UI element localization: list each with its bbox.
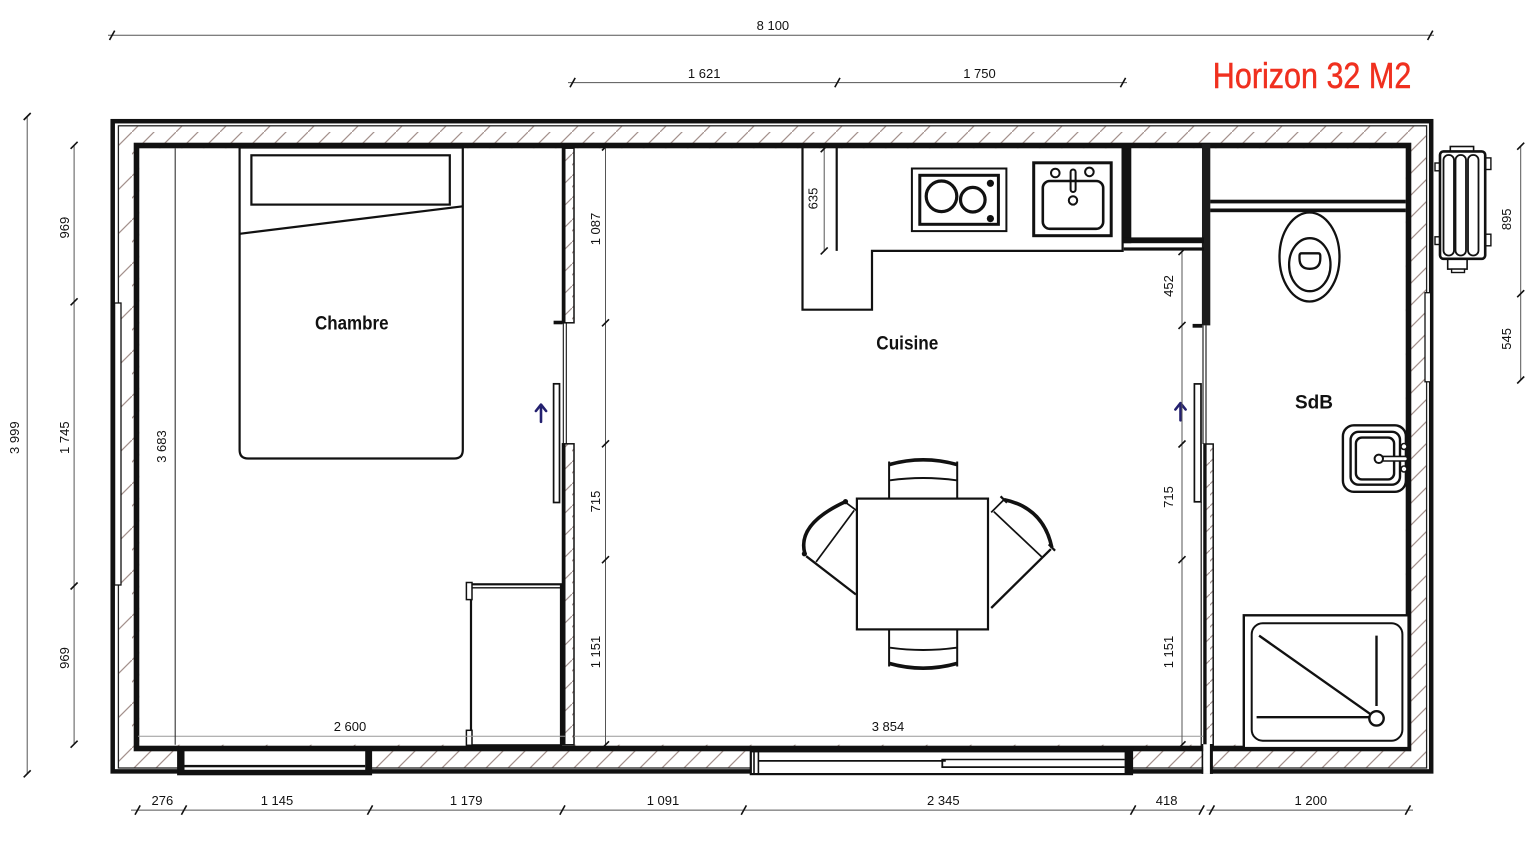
svg-text:1 750: 1 750 xyxy=(963,66,996,81)
svg-text:715: 715 xyxy=(1161,486,1176,508)
svg-text:1 621: 1 621 xyxy=(688,66,721,81)
svg-text:Chambre: Chambre xyxy=(315,314,389,335)
svg-text:8 100: 8 100 xyxy=(757,18,790,33)
svg-text:1 745: 1 745 xyxy=(57,421,72,454)
svg-text:1 145: 1 145 xyxy=(261,793,294,808)
svg-text:1 200: 1 200 xyxy=(1295,793,1328,808)
svg-text:635: 635 xyxy=(806,188,821,210)
svg-text:452: 452 xyxy=(1161,275,1176,297)
svg-text:545: 545 xyxy=(1499,328,1514,350)
svg-text:715: 715 xyxy=(588,491,603,513)
svg-text:895: 895 xyxy=(1499,208,1514,230)
svg-text:SdB: SdB xyxy=(1295,393,1333,414)
svg-text:3 854: 3 854 xyxy=(872,719,905,734)
svg-text:1 179: 1 179 xyxy=(450,793,483,808)
svg-text:1 091: 1 091 xyxy=(647,793,680,808)
svg-text:1 151: 1 151 xyxy=(588,636,603,669)
svg-text:1 151: 1 151 xyxy=(1161,636,1176,669)
svg-text:3 683: 3 683 xyxy=(154,430,169,463)
svg-text:Cuisine: Cuisine xyxy=(876,333,938,354)
svg-text:Horizon 32 M2: Horizon 32 M2 xyxy=(1213,55,1412,96)
svg-text:276: 276 xyxy=(152,793,174,808)
svg-text:1 087: 1 087 xyxy=(588,213,603,246)
svg-text:969: 969 xyxy=(57,647,72,669)
svg-text:2 600: 2 600 xyxy=(334,719,367,734)
svg-text:418: 418 xyxy=(1156,793,1178,808)
svg-text:2 345: 2 345 xyxy=(927,793,960,808)
svg-text:3 999: 3 999 xyxy=(7,421,22,454)
svg-text:969: 969 xyxy=(57,217,72,239)
